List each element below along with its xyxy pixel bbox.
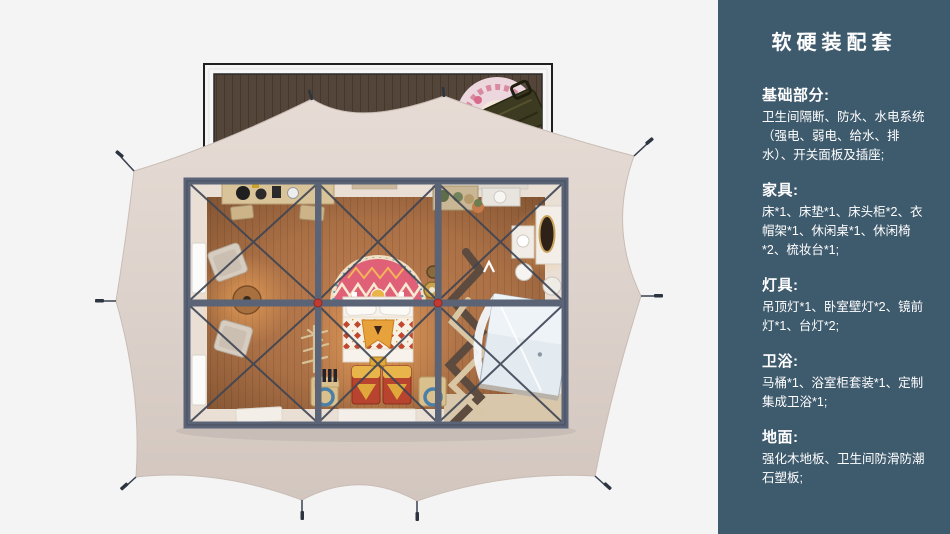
section-furniture: 家具: 床*1、床垫*1、床头柜*2、衣帽架*1、休闲桌*1、休闲椅*2、梳妆台… bbox=[762, 182, 924, 260]
section-bathroom: 卫浴: 马桶*1、浴室柜套装*1、定制集成卫浴*1; bbox=[762, 353, 924, 412]
section-bathroom-body: 马桶*1、浴室柜套装*1、定制集成卫浴*1; bbox=[762, 374, 926, 412]
section-basics-body: 卫生间隔断、防水、水电系统（强电、弱电、给水、排水）、开关面板及插座; bbox=[762, 108, 926, 165]
screenshot-root: 软硬装配套 基础部分: 卫生间隔断、防水、水电系统（强电、弱电、给水、排水）、开… bbox=[0, 0, 950, 534]
section-floor: 地面: 强化木地板、卫生间防滑防潮石塑板; bbox=[762, 429, 924, 488]
spec-panel: 软硬装配套 基础部分: 卫生间隔断、防水、水电系统（强电、弱电、给水、排水）、开… bbox=[718, 0, 950, 534]
section-lighting-body: 吊顶灯*1、卧室壁灯*2、镜前灯*1、台灯*2; bbox=[762, 298, 926, 336]
floorplan-render bbox=[0, 0, 718, 534]
floorplan-svg bbox=[0, 0, 718, 534]
section-lighting-heading: 灯具: bbox=[762, 277, 924, 294]
vanity-mirror bbox=[540, 216, 555, 252]
section-basics-heading: 基础部分: bbox=[762, 87, 924, 104]
section-lighting: 灯具: 吊顶灯*1、卧室壁灯*2、镜前灯*1、台灯*2; bbox=[762, 277, 924, 336]
panel-title: 软硬装配套 bbox=[753, 30, 915, 57]
vanity-stool bbox=[516, 264, 533, 281]
section-bathroom-heading: 卫浴: bbox=[762, 353, 924, 370]
bed bbox=[332, 256, 424, 362]
section-furniture-heading: 家具: bbox=[762, 182, 924, 199]
section-basics: 基础部分: 卫生间隔断、防水、水电系统（强电、弱电、给水、排水）、开关面板及插座… bbox=[762, 87, 924, 165]
section-floor-body: 强化木地板、卫生间防滑防潮石塑板; bbox=[762, 450, 926, 488]
section-furniture-body: 床*1、床垫*1、床头柜*2、衣帽架*1、休闲桌*1、休闲椅*2、梳妆台*1; bbox=[762, 203, 926, 260]
section-floor-heading: 地面: bbox=[762, 429, 924, 446]
